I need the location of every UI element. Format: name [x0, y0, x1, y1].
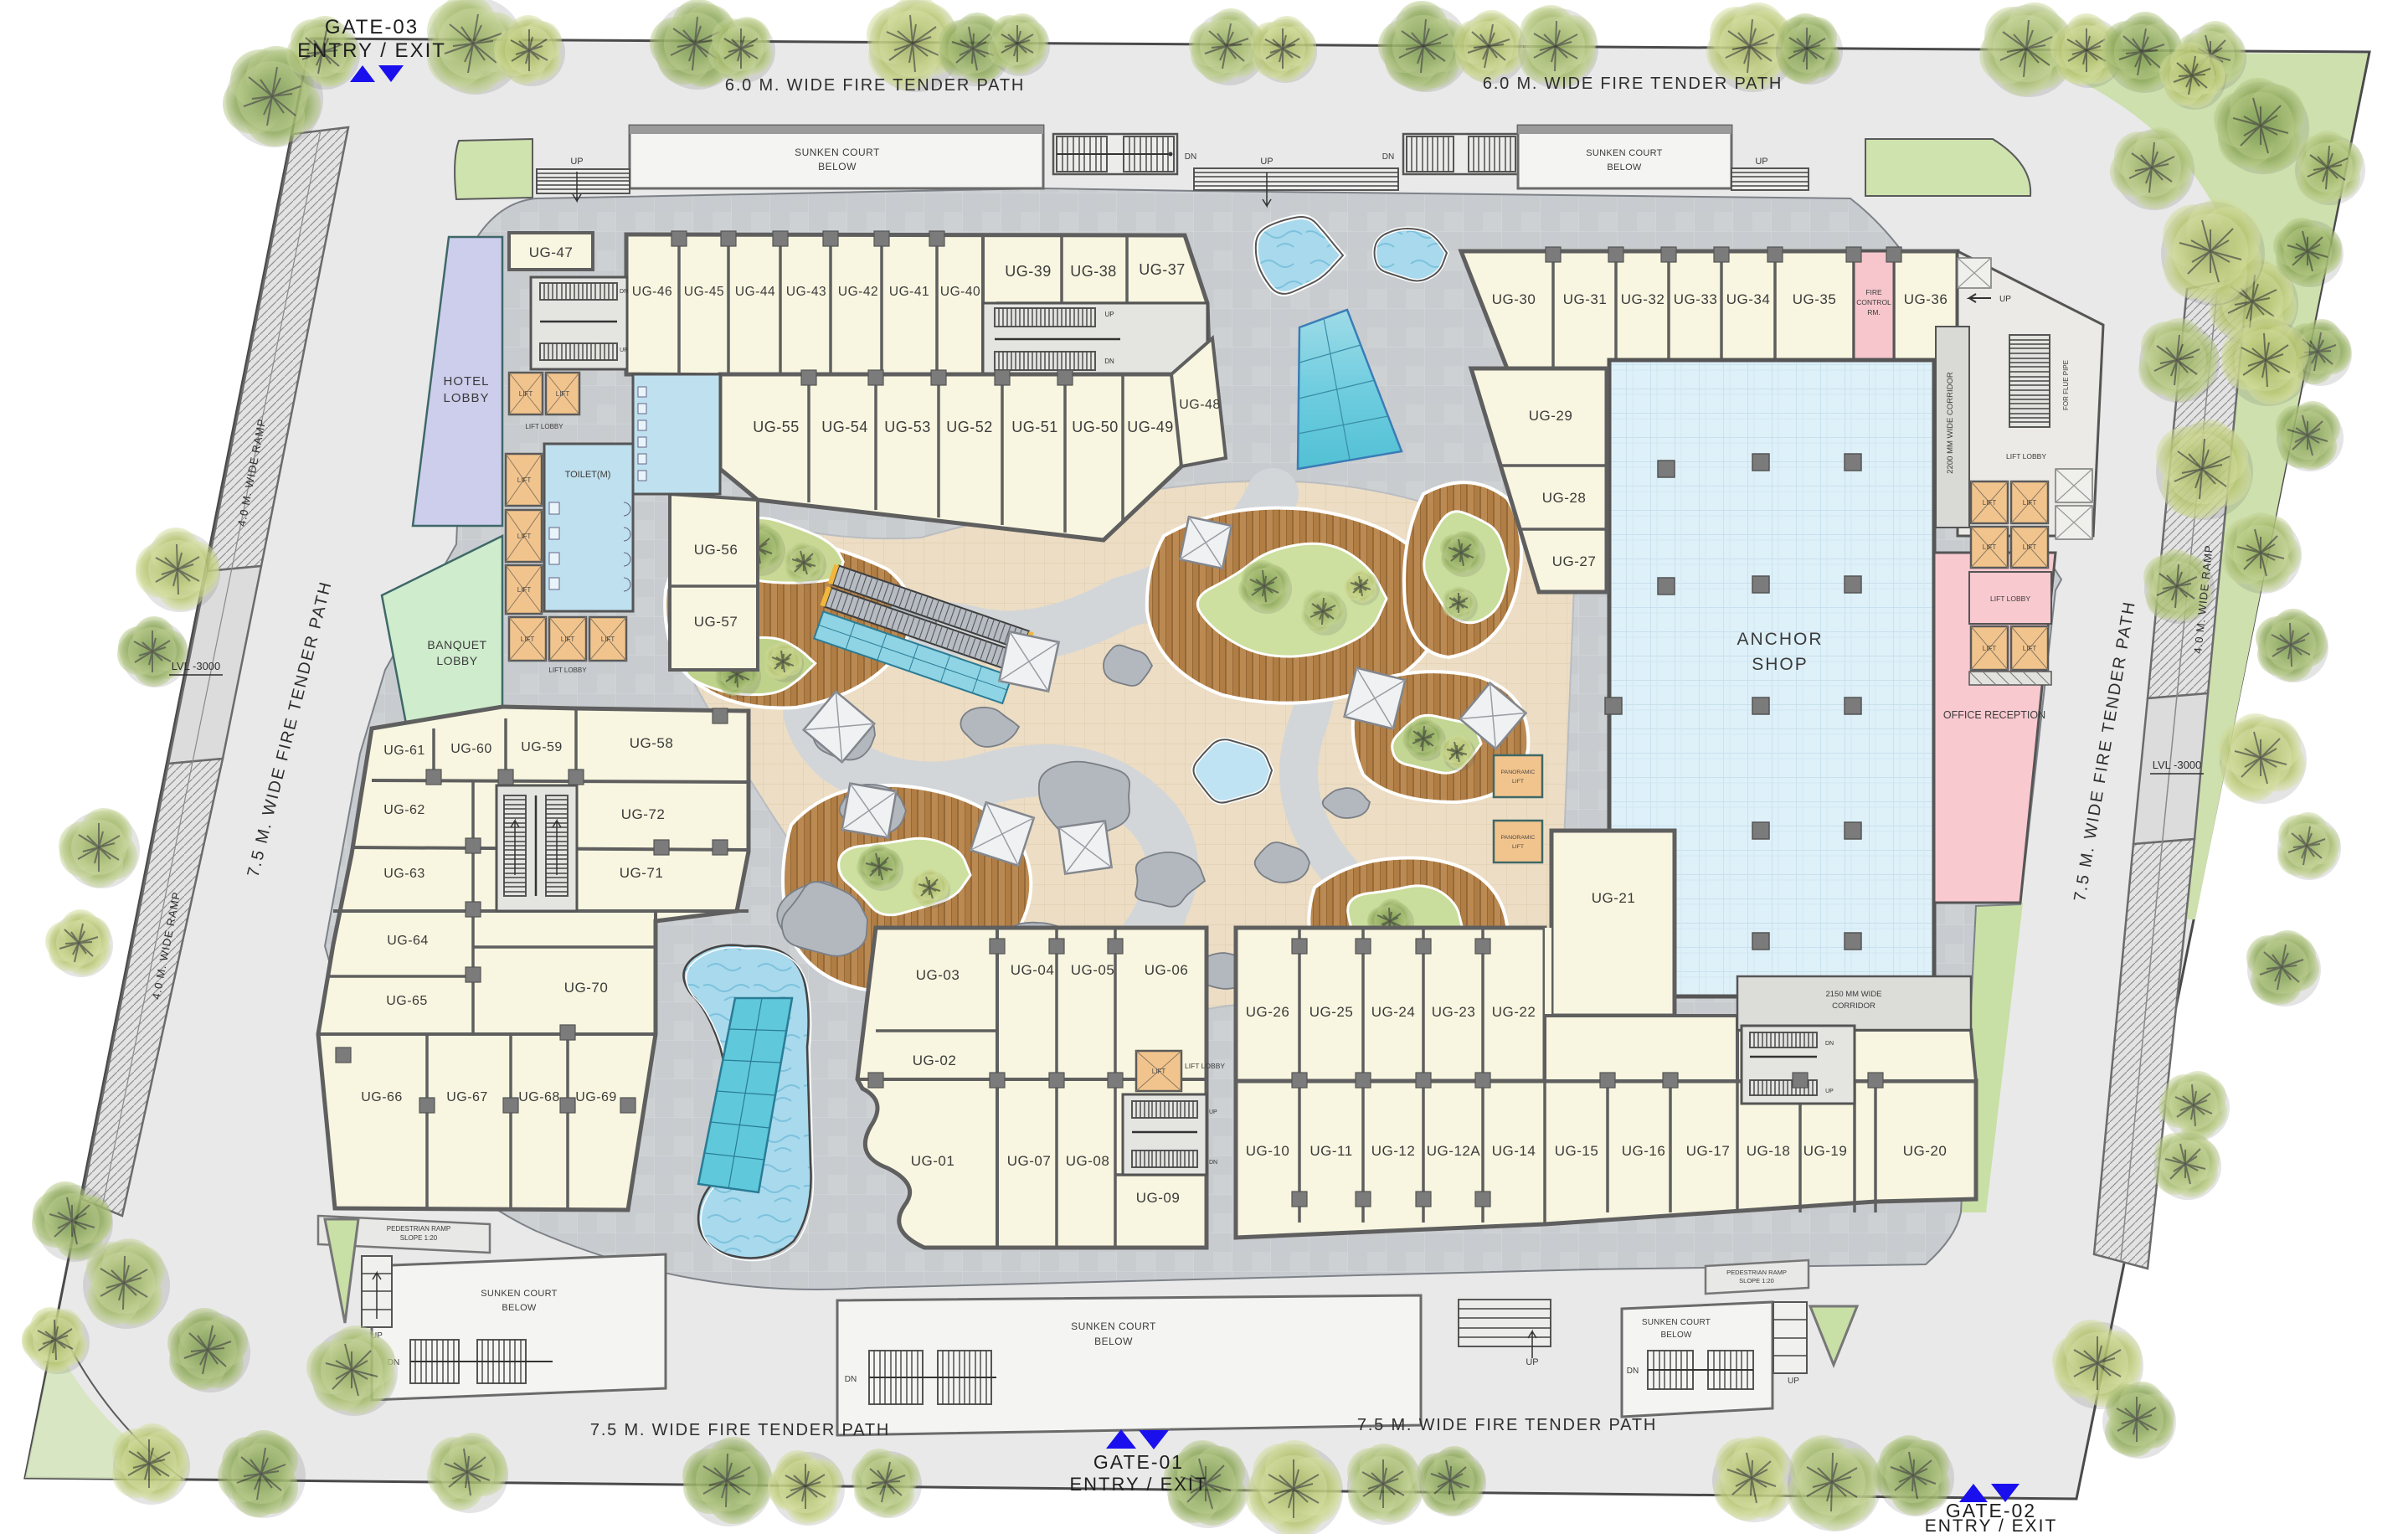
svg-text:UG-12A: UG-12A: [1427, 1143, 1481, 1159]
svg-text:LIFT: LIFT: [1983, 499, 1997, 507]
svg-text:TOILET(M): TOILET(M): [565, 470, 611, 480]
svg-text:UG-51: UG-51: [1011, 419, 1058, 435]
svg-text:UG-04: UG-04: [1011, 962, 1055, 978]
svg-text:FIRE: FIRE: [1865, 288, 1882, 296]
svg-text:UG-15: UG-15: [1555, 1143, 1599, 1159]
svg-text:UG-12: UG-12: [1371, 1143, 1416, 1159]
svg-text:UG-30: UG-30: [1492, 291, 1536, 307]
svg-text:SHOP: SHOP: [1752, 655, 1809, 674]
svg-text:LIFT: LIFT: [601, 636, 615, 643]
svg-text:UG-50: UG-50: [1072, 419, 1119, 435]
svg-text:UG-63: UG-63: [383, 867, 425, 881]
svg-text:UG-31: UG-31: [1563, 291, 1608, 307]
svg-text:BELOW: BELOW: [502, 1303, 537, 1313]
svg-text:LIFT: LIFT: [521, 636, 535, 643]
svg-text:UG-46: UG-46: [632, 285, 672, 299]
svg-text:GATE-03: GATE-03: [325, 16, 419, 39]
svg-text:UP: UP: [1755, 157, 1767, 167]
svg-text:UG-10: UG-10: [1246, 1143, 1290, 1159]
svg-text:UG-34: UG-34: [1726, 291, 1771, 307]
svg-text:LVL -3000: LVL -3000: [2153, 759, 2202, 771]
svg-text:UG-20: UG-20: [1903, 1143, 1947, 1159]
svg-text:ENTRY / EXIT: ENTRY / EXIT: [1069, 1474, 1207, 1495]
svg-text:LIFT: LIFT: [517, 586, 532, 594]
svg-text:UG-07: UG-07: [1007, 1153, 1052, 1169]
svg-text:PEDESTRIAN RAMP: PEDESTRIAN RAMP: [387, 1225, 450, 1233]
svg-text:UG-45: UG-45: [684, 285, 724, 299]
svg-text:UG-38: UG-38: [1070, 263, 1117, 280]
svg-text:ANCHOR: ANCHOR: [1737, 630, 1823, 649]
svg-text:UG-61: UG-61: [383, 744, 425, 758]
svg-text:UP: UP: [1260, 157, 1273, 167]
svg-text:UG-43: UG-43: [786, 285, 826, 299]
svg-text:6.0 M. WIDE FIRE TENDER PATH: 6.0 M. WIDE FIRE TENDER PATH: [725, 76, 1025, 95]
svg-text:SLOPE 1:20: SLOPE 1:20: [1739, 1277, 1774, 1284]
svg-text:UP: UP: [570, 157, 583, 167]
svg-text:UG-59: UG-59: [521, 740, 563, 754]
svg-text:UG-08: UG-08: [1066, 1153, 1110, 1169]
svg-text:UG-65: UG-65: [386, 994, 428, 1008]
svg-text:UG-03: UG-03: [916, 967, 960, 983]
svg-text:LIFT LOBBY: LIFT LOBBY: [2006, 452, 2046, 461]
svg-text:SUNKEN COURT: SUNKEN COURT: [1586, 148, 1662, 158]
svg-text:LVL -3000: LVL -3000: [172, 660, 221, 672]
svg-text:BELOW: BELOW: [1094, 1336, 1133, 1347]
svg-text:UG-64: UG-64: [387, 934, 429, 948]
svg-text:UG-06: UG-06: [1145, 962, 1189, 978]
svg-text:UG-25: UG-25: [1309, 1004, 1354, 1020]
svg-text:UG-54: UG-54: [821, 419, 868, 435]
svg-text:DN: DN: [1627, 1367, 1639, 1376]
svg-text:UG-27: UG-27: [1552, 553, 1597, 569]
svg-text:LIFT: LIFT: [519, 390, 533, 398]
svg-text:UG-35: UG-35: [1793, 291, 1837, 307]
svg-text:UG-16: UG-16: [1622, 1143, 1666, 1159]
svg-text:LIFT: LIFT: [1512, 779, 1524, 785]
svg-text:DN: DN: [1209, 1160, 1217, 1166]
svg-text:LIFT: LIFT: [2023, 499, 2037, 507]
svg-text:UG-17: UG-17: [1686, 1143, 1731, 1159]
svg-text:UG-60: UG-60: [450, 742, 492, 756]
svg-text:UG-47: UG-47: [529, 245, 574, 260]
svg-text:UP: UP: [1209, 1109, 1217, 1115]
svg-text:UG-33: UG-33: [1674, 291, 1718, 307]
svg-text:SUNKEN COURT: SUNKEN COURT: [1071, 1320, 1156, 1332]
svg-text:BELOW: BELOW: [1607, 162, 1642, 172]
svg-text:RM.: RM.: [1867, 308, 1881, 317]
svg-text:BELOW: BELOW: [1660, 1331, 1691, 1340]
svg-text:OFFICE RECEPTION: OFFICE RECEPTION: [1943, 709, 2045, 721]
svg-text:LIFT: LIFT: [556, 390, 570, 398]
svg-text:UG-67: UG-67: [446, 1090, 488, 1104]
svg-text:UG-36: UG-36: [1904, 291, 1948, 307]
svg-text:UG-42: UG-42: [838, 285, 878, 299]
svg-text:UG-68: UG-68: [518, 1090, 560, 1104]
svg-text:UP: UP: [1999, 295, 2011, 304]
svg-text:UG-57: UG-57: [694, 614, 738, 630]
svg-text:UG-62: UG-62: [383, 803, 425, 817]
svg-text:UG-56: UG-56: [694, 542, 738, 558]
svg-text:UG-58: UG-58: [630, 735, 674, 751]
svg-text:ENTRY / EXIT: ENTRY / EXIT: [297, 39, 446, 62]
svg-text:UG-29: UG-29: [1529, 408, 1573, 424]
svg-text:UG-02: UG-02: [913, 1053, 957, 1068]
svg-text:UG-71: UG-71: [620, 865, 664, 881]
svg-text:UG-41: UG-41: [889, 285, 929, 299]
svg-text:DN: DN: [620, 289, 628, 295]
svg-text:LOBBY: LOBBY: [436, 654, 477, 667]
svg-text:UG-24: UG-24: [1371, 1004, 1416, 1020]
svg-text:7.5 M. WIDE FIRE TENDER PATH: 7.5 M. WIDE FIRE TENDER PATH: [590, 1421, 890, 1439]
svg-text:GATE-01: GATE-01: [1093, 1451, 1184, 1473]
svg-text:UG-09: UG-09: [1136, 1190, 1181, 1206]
svg-text:2200 MM WIDE CORRIDOR: 2200 MM WIDE CORRIDOR: [1946, 372, 1955, 474]
svg-text:DN: DN: [1185, 152, 1196, 162]
svg-text:UG-55: UG-55: [753, 419, 800, 435]
svg-text:LIFT: LIFT: [1152, 1068, 1166, 1075]
svg-text:ENTRY / EXIT: ENTRY / EXIT: [1925, 1516, 2058, 1534]
svg-text:BANQUET: BANQUET: [427, 638, 486, 651]
svg-text:SUNKEN COURT: SUNKEN COURT: [481, 1289, 557, 1299]
svg-text:UP: UP: [620, 347, 628, 353]
svg-text:DN: DN: [1104, 358, 1114, 365]
svg-text:UG-22: UG-22: [1492, 1004, 1536, 1020]
svg-text:DN: DN: [845, 1375, 857, 1384]
svg-text:UG-49: UG-49: [1127, 419, 1174, 435]
svg-text:UG-72: UG-72: [621, 806, 666, 822]
svg-text:PEDESTRIAN RAMP: PEDESTRIAN RAMP: [1726, 1269, 1787, 1276]
svg-text:BELOW: BELOW: [818, 161, 857, 172]
svg-text:CONTROL: CONTROL: [1856, 298, 1891, 306]
svg-text:UG-66: UG-66: [361, 1090, 403, 1104]
svg-text:UG-26: UG-26: [1246, 1004, 1290, 1020]
svg-text:LIFT: LIFT: [1983, 543, 1997, 551]
svg-text:UP: UP: [1788, 1377, 1799, 1386]
svg-text:2150 MM WIDE: 2150 MM WIDE: [1825, 990, 1881, 999]
svg-text:UG-37: UG-37: [1139, 261, 1186, 278]
svg-text:UG-52: UG-52: [946, 419, 993, 435]
svg-text:LIFT: LIFT: [517, 533, 532, 540]
svg-text:UG-53: UG-53: [884, 419, 931, 435]
svg-text:LIFT LOBBY: LIFT LOBBY: [1990, 595, 2030, 603]
svg-text:UG-69: UG-69: [575, 1090, 617, 1104]
svg-text:7.5 M. WIDE FIRE TENDER PATH: 7.5 M. WIDE FIRE TENDER PATH: [1357, 1416, 1657, 1434]
svg-text:UG-21: UG-21: [1592, 890, 1636, 906]
svg-text:UP: UP: [1825, 1089, 1834, 1094]
svg-text:FOR FLUE PIPE: FOR FLUE PIPE: [2062, 360, 2070, 410]
svg-text:UG-19: UG-19: [1803, 1143, 1848, 1159]
svg-text:UP: UP: [1104, 311, 1114, 318]
svg-text:SLOPE 1:20: SLOPE 1:20: [400, 1234, 438, 1242]
svg-text:LIFT: LIFT: [2023, 543, 2037, 551]
svg-text:UG-14: UG-14: [1492, 1143, 1536, 1159]
svg-text:UG-40: UG-40: [940, 285, 980, 299]
svg-text:LIFT: LIFT: [2023, 645, 2037, 652]
svg-text:LIFT LOBBY: LIFT LOBBY: [525, 423, 563, 430]
svg-text:UG-48: UG-48: [1179, 398, 1221, 412]
svg-text:UG-70: UG-70: [564, 980, 609, 996]
svg-text:SUNKEN COURT: SUNKEN COURT: [1642, 1318, 1711, 1327]
svg-text:UP: UP: [1526, 1357, 1538, 1367]
svg-text:UG-23: UG-23: [1432, 1004, 1476, 1020]
svg-text:UG-28: UG-28: [1542, 490, 1587, 506]
svg-text:LIFT: LIFT: [561, 636, 575, 643]
svg-text:LIFT LOBBY: LIFT LOBBY: [548, 667, 587, 674]
svg-text:CORRIDOR: CORRIDOR: [1832, 1001, 1875, 1011]
svg-text:PANORAMIC: PANORAMIC: [1501, 835, 1536, 841]
svg-text:UG-44: UG-44: [735, 285, 775, 299]
svg-text:LIFT: LIFT: [1512, 844, 1524, 850]
svg-text:DN: DN: [1382, 152, 1394, 162]
svg-text:UG-05: UG-05: [1071, 962, 1115, 978]
svg-text:DN: DN: [1825, 1041, 1834, 1047]
svg-text:LIFT: LIFT: [517, 476, 532, 484]
svg-text:UG-32: UG-32: [1621, 291, 1665, 307]
svg-text:PANORAMIC: PANORAMIC: [1501, 770, 1536, 775]
svg-text:6.0 M. WIDE FIRE TENDER PATH: 6.0 M. WIDE FIRE TENDER PATH: [1483, 75, 1783, 93]
svg-text:SUNKEN COURT: SUNKEN COURT: [795, 147, 880, 158]
svg-text:HOTEL: HOTEL: [443, 374, 489, 389]
svg-text:LIFT LOBBY: LIFT LOBBY: [1185, 1062, 1225, 1070]
svg-text:UG-01: UG-01: [911, 1153, 955, 1169]
svg-text:UG-18: UG-18: [1747, 1143, 1791, 1159]
svg-text:UG-11: UG-11: [1309, 1143, 1352, 1159]
svg-text:LIFT: LIFT: [1983, 645, 1997, 652]
svg-text:LOBBY: LOBBY: [443, 391, 489, 405]
svg-text:UG-39: UG-39: [1005, 263, 1052, 280]
